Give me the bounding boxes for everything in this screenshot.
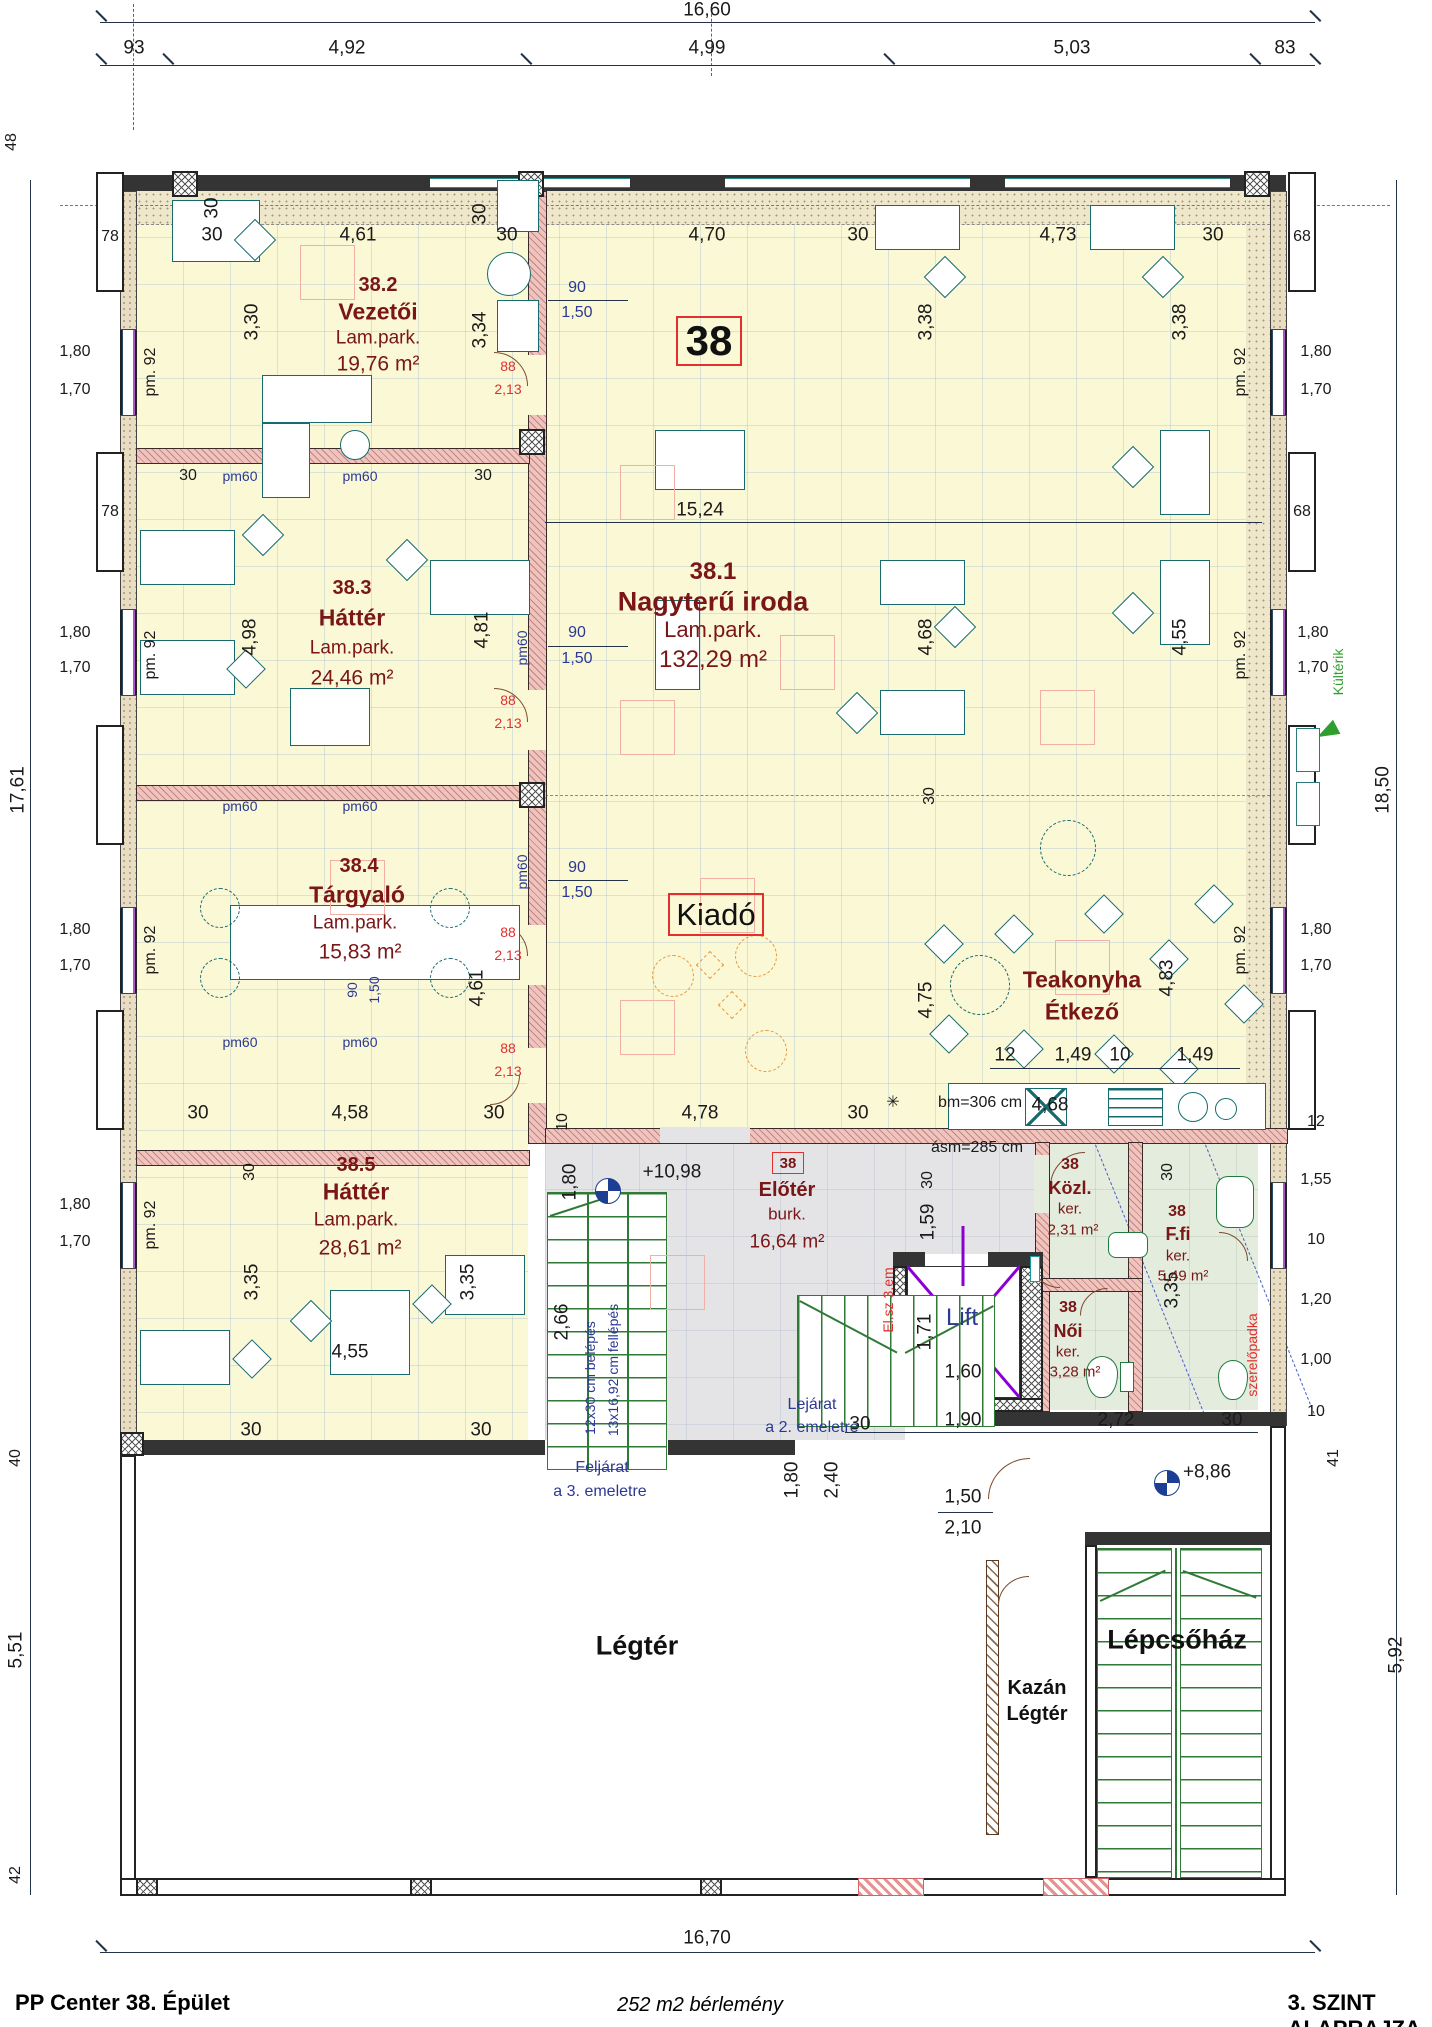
desk [880, 560, 965, 605]
chair [340, 430, 370, 460]
room-384-floor: Lam.park. [313, 914, 397, 933]
dim-1524: 15,24 [676, 501, 724, 520]
dim-30: 30 [201, 226, 222, 245]
dim-470: 4,70 [689, 226, 726, 245]
kitchen-appliance [1108, 1088, 1163, 1126]
desk [140, 530, 235, 585]
east-window-4 [1272, 1183, 1285, 1268]
dim-left-170d: 1,70 [59, 1234, 90, 1250]
kazan-west-wall [986, 1560, 999, 1835]
dim-left-78b: 78 [101, 504, 119, 520]
chair-orange [735, 935, 777, 977]
floor-plan-sheet: 16,60 93 4,92 4,99 5,03 83 16,70 48 78 7… [0, 0, 1432, 2027]
dim-right-100: 1,00 [1300, 1352, 1331, 1368]
dim-tick [96, 53, 108, 65]
column-marker-7 [136, 1878, 158, 1896]
round-table-dashed [950, 955, 1010, 1015]
room-382-floor: Lam.park. [336, 329, 420, 348]
dim-334: 3,34 [471, 312, 490, 349]
level-mark-icon [595, 1178, 621, 1204]
dim-30-v: 30 [471, 203, 490, 224]
south-wall-mid [668, 1440, 795, 1455]
outdoor-unit-2 [1296, 782, 1320, 826]
room-385-area: 28,61 m² [319, 1238, 402, 1259]
note-elsz: El.sz 3.em [881, 1267, 895, 1332]
desk-return [262, 423, 310, 498]
round-table [487, 252, 531, 296]
room-382-num: 38.2 [359, 275, 398, 295]
kazan-east-wall [1085, 1545, 1097, 1878]
dim-338: 3,38 [917, 304, 936, 341]
dim-left-1761: 17,61 [9, 766, 28, 814]
dim-right-10b: 10 [1307, 1404, 1325, 1420]
east-window-1 [1272, 330, 1285, 415]
dim-right-41: 41 [1326, 1449, 1342, 1467]
unit-number-frame: 38 [676, 316, 742, 366]
win-90: 90 [568, 860, 586, 876]
dim-line-teakonyha [990, 1068, 1240, 1069]
level-upper: +10,98 [643, 1163, 702, 1182]
dim-335: 3,35 [459, 1264, 478, 1301]
dim-149: 1,49 [1055, 1046, 1092, 1065]
door-gap-384 [527, 925, 546, 985]
dim-30-v: 30 [922, 787, 938, 805]
ceiling-box [300, 245, 355, 300]
door-213: 2,13 [494, 382, 521, 396]
desk [875, 205, 960, 250]
parapet-left-2: pm. 92 [143, 631, 159, 680]
door-88: 88 [500, 1041, 516, 1055]
column-marker-3 [1244, 171, 1270, 197]
room-385-name: Háttér [323, 1181, 389, 1204]
dim-left-170b: 1,70 [59, 660, 90, 676]
dim-473: 4,73 [1040, 226, 1077, 245]
pm60: pm60 [342, 799, 377, 813]
teakonyha-line2: Étkező [1045, 1001, 1119, 1024]
door-213: 2,13 [494, 716, 521, 730]
dim-483: 4,83 [1158, 960, 1177, 997]
dim-left-40: 40 [8, 1449, 24, 1467]
dim-330: 3,30 [243, 304, 262, 341]
dim-line-left [30, 180, 31, 1895]
door-arc-kazan-1 [988, 1458, 1072, 1540]
dim-right-180b: 1,80 [1297, 625, 1328, 641]
column-marker-8 [410, 1878, 432, 1896]
sink [1216, 1176, 1254, 1228]
dim-149: 1,49 [1177, 1046, 1214, 1065]
dim-30: 30 [847, 226, 868, 245]
stair-note-belepes: 12x30 cm belépés [583, 1321, 597, 1435]
south-wall-red-hatch-1 [858, 1878, 924, 1896]
kozl-area: 2,31 m² [1048, 1223, 1099, 1238]
dim-right-592: 5,92 [1387, 1637, 1406, 1674]
west-window-4 [122, 1183, 135, 1268]
dim-right-68b: 68 [1293, 504, 1311, 520]
east-pier-5 [1270, 1268, 1287, 1426]
dim-30-v: 30 [203, 197, 222, 218]
dim-30: 30 [179, 468, 197, 484]
chair-dashed [430, 888, 470, 928]
room-381-name: Nagyterű iroda [618, 589, 809, 616]
south-wall-left [120, 1440, 545, 1455]
pm60: pm60 [222, 469, 257, 483]
dim-455: 4,55 [332, 1343, 369, 1362]
noi-type: ker. [1056, 1345, 1080, 1360]
dim-top-492: 4,92 [329, 39, 366, 58]
room-384-num: 38.4 [340, 856, 379, 876]
dim-478: 4,78 [682, 1104, 719, 1123]
east-window-2 [1272, 610, 1285, 695]
east-window-3 [1272, 908, 1285, 993]
ffi-name: F.fi [1166, 1225, 1191, 1243]
east-pier-2 [1270, 415, 1287, 610]
desk [1160, 430, 1210, 515]
lejarat-line2: a 2. emeletre [765, 1420, 858, 1436]
eloter-opening [660, 1127, 750, 1143]
dim-30: 30 [1202, 226, 1223, 245]
west-pilaster-box-3 [96, 725, 124, 845]
ceiling-box [620, 700, 675, 755]
east-pilaster-box-4 [1288, 1010, 1316, 1130]
dim-left-180a: 1,80 [59, 344, 90, 360]
column-marker-9 [700, 1878, 722, 1896]
chair-dashed [200, 958, 240, 998]
room-383-name: Háttér [319, 607, 385, 630]
wc-door-gap [1034, 1155, 1049, 1213]
kazan-line2: Légtér [1006, 1704, 1067, 1724]
kiado-label: Kiadó [676, 897, 755, 933]
dim-left-170a: 1,70 [59, 382, 90, 398]
partition-384-385 [136, 1150, 530, 1166]
lepcsohaz-label: Lépcsőház [1107, 1627, 1247, 1654]
west-pier-5 [120, 1268, 137, 1455]
stair-note-fellepes: 13x16,92 cm fellépés [606, 1304, 620, 1436]
toilet-tank [1120, 1362, 1134, 1392]
ceiling-box [780, 635, 835, 690]
column-marker-6 [120, 1432, 144, 1456]
teakonyha-line1: Teakonyha [1023, 969, 1141, 992]
door-213: 2,13 [494, 1064, 521, 1078]
note-szerelopadka: szerelőpadka [1245, 1313, 1259, 1396]
room-383-num: 38.3 [333, 578, 372, 598]
dim-10: 10 [1109, 1046, 1130, 1065]
room-382-name: Vezetői [338, 301, 417, 324]
dim-tick [163, 53, 175, 65]
footer-lease: 252 m2 bérlemény [617, 1994, 783, 2017]
legter-label: Légtér [596, 1633, 679, 1660]
dim-30: 30 [496, 226, 517, 245]
dim-30: 30 [187, 1104, 208, 1123]
east-pier-1 [1270, 191, 1287, 330]
dim-30-v: 30 [242, 1163, 258, 1181]
ceiling-box [620, 1000, 675, 1055]
dim-line-bottom [100, 1952, 1315, 1953]
dim-right-1850: 18,50 [1374, 766, 1393, 814]
dim-159: 1,59 [919, 1204, 938, 1241]
door-gap-385 [527, 1048, 546, 1103]
dim-468: 4,68 [917, 619, 936, 656]
kozl-type: ker. [1058, 1202, 1082, 1217]
zone-dashed-line [545, 795, 1270, 796]
dim-tick [521, 53, 533, 65]
dim-240-v: 2,40 [823, 1462, 842, 1499]
level-lower: +8,86 [1183, 1463, 1231, 1482]
kulterik-label: Kültérik [1331, 649, 1345, 696]
eloter-tag-frame: 38 [772, 1152, 804, 1174]
level-mark-icon [1154, 1470, 1180, 1496]
dim-30: 30 [847, 1104, 868, 1123]
west-window-1 [122, 330, 135, 415]
sink [1108, 1232, 1148, 1258]
pm60: pm60 [342, 469, 377, 483]
north-window-2 [725, 178, 970, 188]
parapet-right-1: pm. 92 [1233, 348, 1249, 397]
asm-note: ásm=285 cm [931, 1140, 1023, 1156]
desk [1090, 205, 1175, 250]
room-384-name: Tárgyaló [309, 884, 405, 907]
chair-orange [745, 1030, 787, 1072]
desk [262, 375, 372, 423]
dim-461-v: 4,61 [468, 970, 487, 1007]
chair-orange [652, 955, 694, 997]
parapet-left-4: pm. 92 [143, 1201, 159, 1250]
dim-tick [96, 10, 108, 22]
noi-tag: 38 [1059, 1300, 1077, 1316]
door-dim-line-kazan [938, 1512, 993, 1513]
sofa [290, 688, 370, 746]
dim-right-180c: 1,80 [1300, 922, 1331, 938]
dim-top-499: 4,99 [689, 39, 726, 58]
bm-note: bm=306 cm [938, 1095, 1022, 1111]
dim-468: 4,68 [1032, 1096, 1069, 1115]
stairwell-top-wall [1085, 1532, 1270, 1545]
dim-30-v: 30 [920, 1171, 936, 1189]
dim-tick [884, 53, 896, 65]
desk [430, 560, 530, 615]
star-symbol: ✳ [886, 1095, 899, 1111]
ffi-area: 5,49 m² [1158, 1269, 1209, 1284]
pm60: pm60 [342, 1035, 377, 1049]
win-150: 1,50 [561, 651, 592, 667]
parapet-left-1: pm. 92 [143, 348, 159, 397]
dim-461: 4,61 [340, 226, 377, 245]
dim-tick [1310, 1940, 1322, 1952]
dim-line-1524 [545, 522, 1262, 523]
dim-210: 2,10 [945, 1519, 982, 1538]
pm60: pm60 [222, 799, 257, 813]
dim-190: 1,90 [945, 1411, 982, 1430]
desk [140, 1330, 230, 1385]
win-150: 1,50 [561, 305, 592, 321]
feljarat-line1: Feljárat [575, 1460, 628, 1476]
dim-180-v: 1,80 [561, 1164, 580, 1201]
ffi-tag: 38 [1168, 1204, 1186, 1220]
eloter-floor: burk. [768, 1206, 806, 1223]
dim-right-170c: 1,70 [1300, 958, 1331, 974]
kozl-name: Közl. [1049, 1179, 1092, 1197]
dim-left-48: 48 [4, 133, 20, 151]
outdoor-unit-1 [1296, 728, 1320, 772]
dim-338: 3,38 [1171, 304, 1190, 341]
dim-right-120: 1,20 [1300, 1292, 1331, 1308]
lejarat-line1: Lejárat [788, 1397, 837, 1413]
dim-right-68a: 68 [1293, 229, 1311, 245]
column-marker-1 [172, 171, 198, 197]
lower-west-wall [120, 1455, 136, 1895]
dim-30-v: 30 [1160, 1163, 1176, 1181]
kozl-tag: 38 [1061, 1157, 1079, 1173]
column-marker-5 [519, 782, 545, 808]
dim-475: 4,75 [917, 982, 936, 1019]
armchair [497, 300, 539, 352]
dim-tick [1310, 53, 1322, 65]
dim-180-v: 1,80 [783, 1462, 802, 1499]
dim-right-170a: 1,70 [1300, 382, 1331, 398]
dim-line-top-segments [100, 65, 1315, 66]
west-pilaster-box-4 [96, 1010, 124, 1130]
dim-left-170c: 1,70 [59, 958, 90, 974]
door-gap-383 [527, 690, 546, 750]
dim-overall-bottom: 16,70 [683, 1929, 731, 1948]
room-385-num: 38.5 [337, 1155, 376, 1175]
win-90: 90 [568, 625, 586, 641]
west-window-3 [122, 908, 135, 993]
column-marker-4 [519, 429, 545, 455]
dim-tick [1250, 53, 1262, 65]
door-gap-382 [527, 355, 546, 415]
lift-shaft-wall-right [1020, 1266, 1043, 1412]
room-383-floor: Lam.park. [310, 639, 394, 658]
pm60-v: pm60 [515, 630, 529, 665]
dim-498: 4,98 [241, 619, 260, 656]
dim-481: 4,81 [473, 612, 492, 649]
pm60-v: pm60 [515, 854, 529, 889]
partition-382-383 [136, 448, 530, 464]
dim-line-top-overall [100, 22, 1315, 23]
kitchen-round-sink [1178, 1092, 1208, 1122]
chair-dashed [430, 958, 470, 998]
door-arc-kazan-2 [998, 1576, 1060, 1634]
east-pier-3 [1270, 695, 1287, 908]
eloter-name: Előtér [759, 1180, 816, 1200]
dim-left-42: 42 [8, 1866, 24, 1884]
dim-160: 1,60 [945, 1363, 982, 1382]
door-213: 2,13 [494, 948, 521, 962]
dim-10-v: 10 [555, 1113, 571, 1131]
dim-line-lift-row [845, 1432, 1258, 1433]
door-88: 88 [500, 925, 516, 939]
partition-south-corridor [545, 1128, 1288, 1144]
footer-title: 3. SZINT ALAPRAJZA M=1:100 [1288, 1990, 1420, 2027]
west-window-2 [122, 610, 135, 695]
eloter-tag: 38 [780, 1155, 797, 1172]
kitchen-hob [1215, 1098, 1237, 1120]
ceiling-box [650, 1255, 705, 1310]
pm60: pm60 [222, 1035, 257, 1049]
footer-project: PP Center 38. Épület [15, 1990, 230, 2016]
window-dim-line-1 [548, 300, 628, 301]
room-382-area: 19,76 m² [337, 354, 420, 375]
door-88: 88 [500, 359, 516, 373]
win-90-v: 90 [345, 982, 359, 998]
dim-150: 1,50 [945, 1488, 982, 1507]
stair-up-rail-2 [627, 1192, 629, 1470]
parapet-right-3: pm. 92 [1233, 926, 1249, 975]
dim-335: 3,35 [243, 1264, 262, 1301]
dim-455: 4,55 [1171, 619, 1190, 656]
ceiling-box [620, 465, 675, 520]
dim-overall-top: 16,60 [683, 1, 731, 20]
dim-left-180c: 1,80 [59, 922, 90, 938]
dim-30: 30 [474, 468, 492, 484]
eloter-area: 16,64 m² [750, 1233, 825, 1252]
dim-right-180a: 1,80 [1300, 344, 1331, 360]
south-wall-red-hatch-2 [1043, 1878, 1109, 1896]
dim-right-12: 12 [1307, 1114, 1325, 1130]
room-381-num: 38.1 [690, 560, 737, 584]
lift-label: Lift [946, 1306, 978, 1330]
wc-vent [1030, 1256, 1040, 1282]
window-dim-line-2 [548, 646, 628, 647]
room-385-floor: Lam.park. [314, 1211, 398, 1230]
kazan-line1: Kazán [1008, 1678, 1067, 1698]
desk [880, 690, 965, 735]
dim-266: 2,66 [553, 1304, 572, 1341]
dim-left-180d: 1,80 [59, 1197, 90, 1213]
lower-east-wall [1270, 1426, 1286, 1896]
dim-12: 12 [994, 1046, 1015, 1065]
stairwell-flight-right [1180, 1548, 1262, 1878]
dim-top-93: 93 [123, 39, 144, 58]
room-383-area: 24,46 m² [311, 668, 394, 689]
partition-383-384 [136, 785, 530, 801]
round-table-dashed [1040, 820, 1096, 876]
unit-number: 38 [686, 317, 733, 365]
noi-name: Női [1054, 1322, 1083, 1340]
dim-458: 4,58 [332, 1104, 369, 1123]
room-381-area: 132,29 m² [659, 648, 767, 672]
dim-30: 30 [1221, 1411, 1242, 1430]
east-pier-4 [1270, 993, 1287, 1183]
feljarat-line2: a 3. emeletre [553, 1484, 646, 1500]
dim-left-78a: 78 [101, 229, 119, 245]
dim-171: 1,71 [916, 1314, 935, 1351]
ceiling-box [1040, 690, 1095, 745]
dim-tick [1310, 10, 1322, 22]
dim-right-170b: 1,70 [1297, 660, 1328, 676]
dim-tick [96, 1940, 108, 1952]
dim-left-551: 5,51 [7, 1632, 26, 1669]
dim-30: 30 [483, 1104, 504, 1123]
noi-area: 3,28 m² [1050, 1365, 1101, 1380]
dim-30: 30 [470, 1421, 491, 1440]
dim-top-503: 5,03 [1054, 39, 1091, 58]
dim-top-83: 83 [1274, 39, 1295, 58]
dim-30: 30 [240, 1421, 261, 1440]
win-150: 1,50 [561, 885, 592, 901]
dim-right-155: 1,55 [1300, 1172, 1331, 1188]
door-88: 88 [500, 693, 516, 707]
chair-dashed [200, 888, 240, 928]
dim-right-10a: 10 [1307, 1232, 1325, 1248]
window-dim-line-3 [548, 880, 628, 881]
win-150-v: 1,50 [367, 976, 381, 1003]
north-window-3 [1005, 178, 1230, 188]
room-384-area: 15,83 m² [319, 942, 402, 963]
kiado-frame: Kiadó [668, 893, 764, 936]
ffi-type: ker. [1166, 1249, 1190, 1264]
dim-272: 2,72 [1098, 1411, 1135, 1430]
